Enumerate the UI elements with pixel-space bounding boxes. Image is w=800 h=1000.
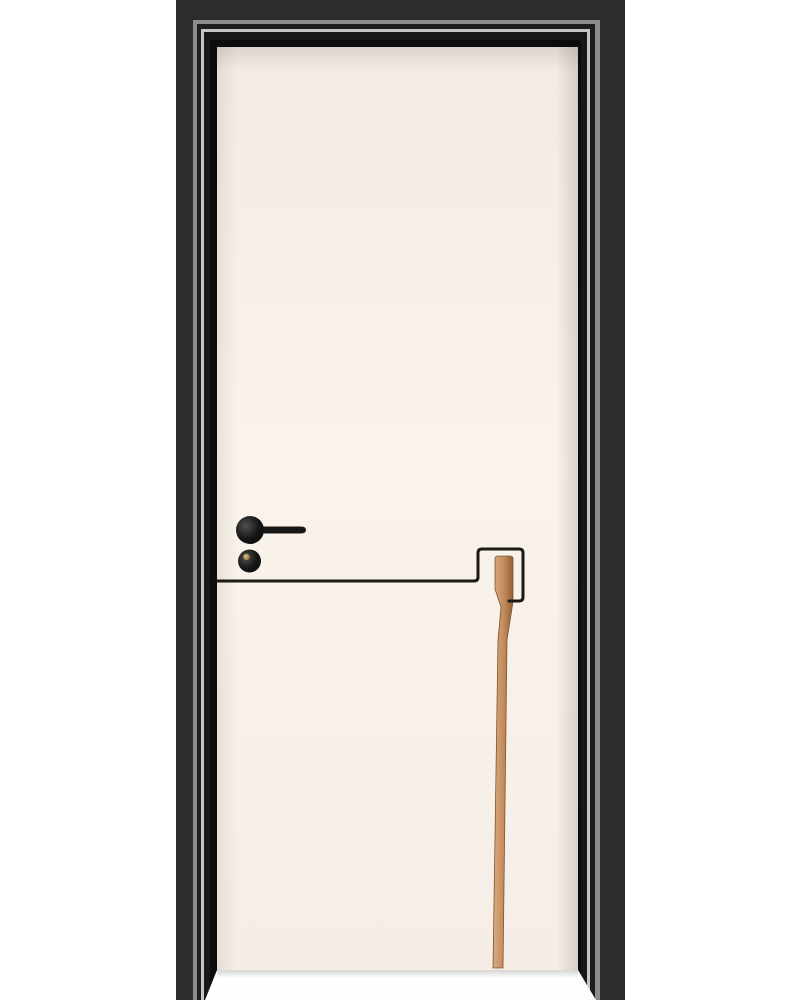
lock-knob xyxy=(238,550,261,573)
product-photo xyxy=(0,0,800,1000)
lever-handle xyxy=(258,527,306,534)
door-scene xyxy=(0,0,800,1000)
handle-rose xyxy=(236,516,264,544)
door-leaf xyxy=(217,47,578,970)
leaf-top-shading xyxy=(217,47,578,71)
keyhole-icon xyxy=(243,554,249,560)
leaf-left-shading xyxy=(217,47,237,970)
leaf-right-shading xyxy=(556,47,578,970)
floor-shadow xyxy=(217,970,578,978)
door-leaf-panel xyxy=(217,47,578,970)
